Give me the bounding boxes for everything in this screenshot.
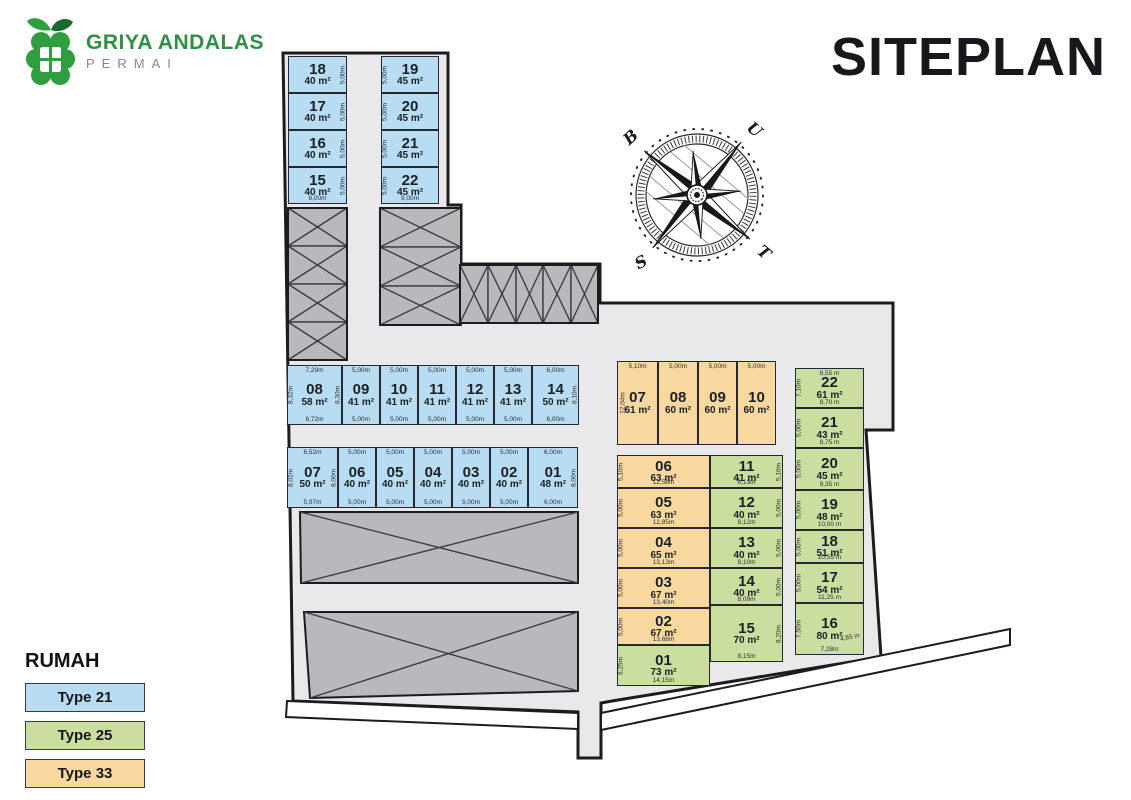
lot-blueTopRight-20: 2045 m²5,00m xyxy=(381,93,439,130)
lot-blueTopRight-19: 1945 m²5,00m xyxy=(381,56,439,93)
dim-right: 8,30m xyxy=(334,386,341,404)
lot-colRight-20: 2045 m²9,35 m5,00m xyxy=(795,448,864,490)
dim-bottom: 9,35 m xyxy=(796,481,863,488)
dim-left: 5,00m xyxy=(382,139,389,157)
dim-left: 5,00m xyxy=(382,102,389,120)
dim-bottom: 5,00m xyxy=(415,499,451,506)
lot-label: 0563 m² xyxy=(650,495,676,520)
dim-right: 5,00m xyxy=(339,139,346,157)
dim-top: 5,10m xyxy=(618,363,657,370)
lot-label: 2145 m² xyxy=(397,136,423,161)
dim-left: 5,00m xyxy=(382,176,389,194)
lot-label: 1640 m² xyxy=(304,136,330,161)
lot-label: 1141 m² xyxy=(424,382,450,407)
dim-bottom: 13,40m xyxy=(618,599,709,606)
lot-rowBottom-05: 0540 m²5,00m5,00m xyxy=(376,447,414,508)
lot-colLeft-04: 0465 m²13,13m5,00m xyxy=(617,528,710,568)
lot-rowBottom-07: 0750 m²6,52m5,97m8,02m8,00m xyxy=(287,447,338,508)
legend-item-type-33: Type 33 xyxy=(25,759,145,788)
dim-top: 5,00m xyxy=(415,449,451,456)
lot-label: 1945 m² xyxy=(397,62,423,87)
lot-label: 1241 m² xyxy=(462,382,488,407)
lot-label: 0960 m² xyxy=(704,390,730,415)
dim-bottom: 5,00m xyxy=(419,416,455,423)
dim-top: 5,00m xyxy=(699,363,736,370)
dim-right: 5,00m xyxy=(339,176,346,194)
lot-colMid-14: 1440 m²8,09m5,00m xyxy=(710,568,783,605)
dim-bottom: 5,97m xyxy=(288,499,337,506)
lot-colRight-22: 2261 m²8,55 m8,70 m7,10m xyxy=(795,368,864,408)
dim-bottom: 5,00m xyxy=(457,416,493,423)
dim-top: 5,00m xyxy=(339,449,375,456)
lot-label: 1060 m² xyxy=(743,390,769,415)
lot-label: 0858 m² xyxy=(301,382,327,407)
lot-rowTop-11: 1141 m²5,00m5,00m xyxy=(418,365,456,425)
lot-label: 1341 m² xyxy=(500,382,526,407)
lot-colRight-19: 1948 m²10,00 m5,00m xyxy=(795,490,864,530)
dim-bottom: 5,00m xyxy=(377,499,413,506)
lot-label: 0860 m² xyxy=(665,390,691,415)
dim-top: 5,00m xyxy=(659,363,697,370)
dim-bottom: 8,15m xyxy=(711,653,782,660)
lot-label: 1041 m² xyxy=(386,382,412,407)
lot-colLeft-05: 0563 m²12,85m5,00m xyxy=(617,488,710,528)
lot-orangeRow-08: 0860 m²5,00m xyxy=(658,361,698,445)
dim-top: 5,00m xyxy=(343,367,379,374)
dim-bottom: 5,00m xyxy=(453,499,489,506)
dim-right: 5,00m xyxy=(775,499,782,517)
dim-bottom: 7,28m xyxy=(796,646,863,653)
dim-bottom: 8,13m xyxy=(711,479,782,486)
dim-top: 6,52m xyxy=(288,449,337,456)
dim-top: 5,00m xyxy=(495,367,531,374)
dim-bottom: 8,75 m xyxy=(796,439,863,446)
dim-right: 5,00m xyxy=(775,577,782,595)
lot-colRight-21: 2143 m²8,75 m5,00m xyxy=(795,408,864,448)
dim-bottom: 11,25 m xyxy=(796,594,863,601)
dim-bottom: 5,00m xyxy=(495,416,531,423)
lot-label: 0173 m² xyxy=(650,653,676,678)
lot-colRight-18: 1851 m²10,55 m5,00m xyxy=(795,530,864,563)
dim-bottom: 12,85m xyxy=(618,519,709,526)
lot-rowBottom-04: 0440 m²5,00m5,00m xyxy=(414,447,452,508)
dim-left: 8,02m xyxy=(288,468,295,486)
dim-bottom: 8,00m xyxy=(289,195,346,202)
dim-right: 8,00m xyxy=(330,468,337,486)
dim-bottom: 5,00m xyxy=(343,416,379,423)
lots-layer: 1840 m²5,00m1740 m²5,00m1640 m²5,00m1540… xyxy=(0,0,1131,800)
lot-label: 0340 m² xyxy=(458,465,484,490)
legend-title: RUMAH xyxy=(25,650,155,673)
dim-left: 5,00m xyxy=(796,574,803,592)
dim-bottom: 5,00m xyxy=(491,499,527,506)
lot-blueTopLeft-15: 1540 m²8,00m5,00m xyxy=(288,167,347,204)
lot-blueTopRight-21: 2145 m²5,00m xyxy=(381,130,439,167)
dim-top: 5,00m xyxy=(419,367,455,374)
dim-left: 5,00m xyxy=(618,539,625,557)
dim-bottom: 14,15m xyxy=(618,677,709,684)
lot-rowTop-10: 1041 m²5,00m5,00m xyxy=(380,365,418,425)
lot-label: 0640 m² xyxy=(344,465,370,490)
lot-label: 1740 m² xyxy=(304,99,330,124)
dim-top: 5,00m xyxy=(453,449,489,456)
legend-item-type-21: Type 21 xyxy=(25,683,145,712)
dim-right: 5,00m xyxy=(339,102,346,120)
lot-label: 1948 m² xyxy=(816,497,842,522)
lot-label: 1450 m² xyxy=(542,382,568,407)
lot-colLeft-03: 0367 m²13,40m5,00m xyxy=(617,568,710,608)
lot-rowTop-09: 0941 m²5,00m5,00m xyxy=(342,365,380,425)
lot-label: 0750 m² xyxy=(299,465,325,490)
lot-blueTopLeft-16: 1640 m²5,00m xyxy=(288,130,347,167)
dim-bottom: 5,00m xyxy=(339,499,375,506)
dim-bottom: 13,13m xyxy=(618,559,709,566)
dim-left: 7,10m xyxy=(796,379,803,397)
dim-top: 5,00m xyxy=(381,367,417,374)
dim-bottom: 6,72m xyxy=(288,416,341,423)
dim-bottom: 10,55 m xyxy=(796,554,863,561)
lot-rowTop-13: 1341 m²5,00m5,00m xyxy=(494,365,532,425)
dim-left: 8,32m xyxy=(288,386,295,404)
lot-label: 2045 m² xyxy=(397,99,423,124)
dim-top: 5,00m xyxy=(457,367,493,374)
dim-left: 5,00m xyxy=(382,65,389,83)
dim-bottom: 9,00m xyxy=(382,195,438,202)
dim-right: 8,00m xyxy=(570,468,577,486)
dim-left: 5,10m xyxy=(618,462,625,480)
lot-rowBottom-03: 0340 m²5,00m5,00m xyxy=(452,447,490,508)
lot-blueTopRight-22: 2245 m²9,00m5,00m xyxy=(381,167,439,204)
dim-right: 5,00m xyxy=(339,65,346,83)
dim-bottom: 12,58m xyxy=(618,479,709,486)
lot-label: 0240 m² xyxy=(496,465,522,490)
dim-right: 5,10m xyxy=(775,462,782,480)
dim-bottom: 8,09m xyxy=(711,596,782,603)
siteplan-page: U T S B GRIYA ANDALAS PERMAI SITEPLAN xyxy=(0,0,1131,800)
lot-label: 1240 m² xyxy=(733,495,759,520)
lot-colRight-17: 1754 m²11,25 m5,00m xyxy=(795,563,864,603)
dim-bottom: 6,00m xyxy=(529,499,577,506)
lot-rowBottom-02: 0240 m²5,00m5,00m xyxy=(490,447,528,508)
lot-label: 0148 m² xyxy=(540,465,566,490)
dim-left: 5,00m xyxy=(796,537,803,555)
dim-left: 7,50m xyxy=(796,620,803,638)
dim-bottom: 8,10m xyxy=(711,559,782,566)
dim-bottom: 5,00m xyxy=(381,416,417,423)
lot-label: 0761 m² xyxy=(624,390,650,415)
dim-bottom: 8,70 m xyxy=(796,399,863,406)
dim-bottom: 10,00 m xyxy=(796,521,863,528)
legend-items: Type 21Type 25Type 33 xyxy=(25,683,155,788)
dim-top: 5,00m xyxy=(738,363,775,370)
lot-rowTop-08: 0858 m²7,29m6,72m8,32m8,30m xyxy=(287,365,342,425)
dim-bottom: 8,12m xyxy=(711,519,782,526)
lot-blueTopLeft-18: 1840 m²5,00m xyxy=(288,56,347,93)
lot-orangeRow-09: 0960 m²5,00m xyxy=(698,361,737,445)
dim-top: 5,00m xyxy=(377,449,413,456)
lot-label: 1570 m² xyxy=(733,621,759,646)
dim-right: 8,10m xyxy=(571,386,578,404)
lot-label: 1840 m² xyxy=(304,62,330,87)
lot-label: 0440 m² xyxy=(420,465,446,490)
lot-label: 0367 m² xyxy=(650,575,676,600)
lot-label: 0941 m² xyxy=(348,382,374,407)
lot-label: 0465 m² xyxy=(650,535,676,560)
lot-rowBottom-06: 0640 m²5,00m5,00m xyxy=(338,447,376,508)
dim-top: 6,00m xyxy=(533,367,578,374)
dim-top: 6,00m xyxy=(529,449,577,456)
lot-orangeRow-10: 1060 m²5,00m xyxy=(737,361,776,445)
lot-orangeRow-07: 0761 m²5,10m12,04m xyxy=(617,361,658,445)
lot-label: 2261 m² xyxy=(816,375,842,400)
dim-bottom: 6,00m xyxy=(533,416,578,423)
dim-top: 8,55 m xyxy=(796,370,863,377)
dim-top: 5,00m xyxy=(491,449,527,456)
dim-right: 5,00m xyxy=(775,539,782,557)
dim-left: 5,00m xyxy=(618,617,625,635)
dim-left: 6,25m xyxy=(618,656,625,674)
legend: RUMAH Type 21Type 25Type 33 xyxy=(25,650,155,797)
lot-label: 1340 m² xyxy=(733,535,759,560)
dim-left: 5,00m xyxy=(618,579,625,597)
lot-colMid-11: 1141 m²8,13m5,10m xyxy=(710,455,783,488)
lot-blueTopLeft-17: 1740 m²5,00m xyxy=(288,93,347,130)
legend-item-type-25: Type 25 xyxy=(25,721,145,750)
dim-left: 5,00m xyxy=(796,501,803,519)
lot-label: 2045 m² xyxy=(816,456,842,481)
lot-colRight-16: 1680 m²7,28m7,50m4,85 m xyxy=(795,603,864,655)
dim-right: 8,20m xyxy=(775,624,782,642)
lot-colMid-15: 1570 m²8,15m8,20m xyxy=(710,605,783,662)
lot-label: 0540 m² xyxy=(382,465,408,490)
dim-left: 12,04m xyxy=(619,392,626,414)
dim-left: 5,00m xyxy=(796,460,803,478)
lot-colMid-13: 1340 m²8,10m5,00m xyxy=(710,528,783,568)
dim-left: 5,00m xyxy=(796,419,803,437)
lot-colMid-12: 1240 m²8,12m5,00m xyxy=(710,488,783,528)
lot-colLeft-01: 0173 m²14,15m6,25m xyxy=(617,645,710,686)
lot-rowTop-12: 1241 m²5,00m5,00m xyxy=(456,365,494,425)
dim-bottom: 13,68m xyxy=(618,636,709,643)
lot-rowTop-14: 1450 m²6,00m6,00m8,10m xyxy=(532,365,579,425)
lot-label: 1680 m² xyxy=(816,616,842,641)
lot-label: 2143 m² xyxy=(816,415,842,440)
dim-left: 5,00m xyxy=(618,499,625,517)
lot-colLeft-02: 0267 m²13,68m5,00m xyxy=(617,608,710,645)
lot-colLeft-06: 0663 m²12,58m5,10m xyxy=(617,455,710,488)
lot-rowBottom-01: 0148 m²6,00m6,00m8,00m xyxy=(528,447,578,508)
dim-top: 7,29m xyxy=(288,367,341,374)
lot-label: 1754 m² xyxy=(816,570,842,595)
